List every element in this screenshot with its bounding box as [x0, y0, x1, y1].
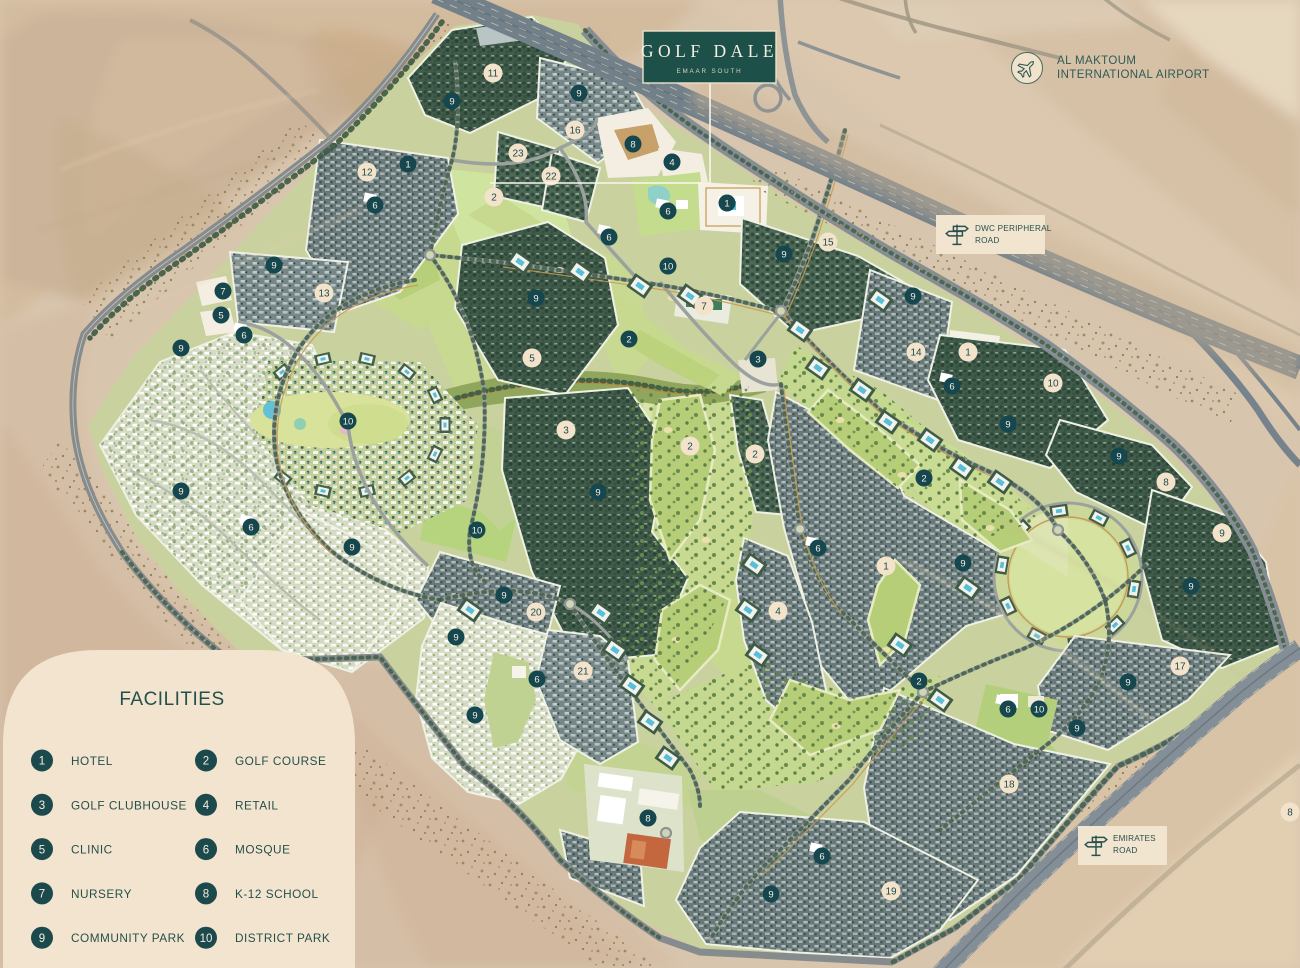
- svg-text:1: 1: [724, 198, 729, 209]
- svg-text:3: 3: [755, 354, 760, 365]
- svg-text:10: 10: [472, 525, 483, 536]
- svg-text:21: 21: [577, 667, 589, 678]
- svg-text:EMIRATES: EMIRATES: [1113, 834, 1156, 843]
- svg-text:16: 16: [569, 126, 581, 137]
- svg-text:9: 9: [533, 293, 538, 304]
- svg-text:9: 9: [39, 933, 45, 945]
- svg-text:1: 1: [39, 756, 45, 768]
- svg-text:3: 3: [563, 426, 569, 437]
- svg-text:20: 20: [530, 608, 542, 619]
- svg-text:COMMUNITY PARK: COMMUNITY PARK: [71, 931, 185, 945]
- svg-text:9: 9: [595, 487, 600, 498]
- svg-text:9: 9: [453, 632, 458, 643]
- svg-text:2: 2: [626, 334, 631, 345]
- svg-text:EMAAR SOUTH: EMAAR SOUTH: [677, 68, 743, 75]
- svg-text:6: 6: [248, 522, 253, 533]
- svg-text:DISTRICT PARK: DISTRICT PARK: [235, 931, 330, 945]
- svg-text:6: 6: [241, 330, 246, 341]
- svg-text:9: 9: [449, 96, 454, 107]
- svg-text:13: 13: [318, 289, 330, 300]
- svg-text:5: 5: [529, 354, 535, 365]
- svg-text:1: 1: [965, 348, 971, 359]
- svg-text:8: 8: [630, 139, 635, 150]
- svg-text:RETAIL: RETAIL: [235, 798, 278, 812]
- svg-text:ROAD: ROAD: [975, 236, 999, 245]
- svg-text:10: 10: [1034, 704, 1045, 715]
- svg-text:19: 19: [885, 887, 897, 898]
- svg-text:10: 10: [343, 416, 354, 427]
- svg-text:1: 1: [405, 159, 410, 170]
- svg-text:7: 7: [220, 286, 225, 297]
- svg-text:ROAD: ROAD: [1113, 846, 1137, 855]
- svg-text:9: 9: [910, 291, 915, 302]
- svg-text:1: 1: [883, 562, 889, 573]
- svg-text:9: 9: [349, 542, 354, 553]
- svg-text:INTERNATIONAL AIRPORT: INTERNATIONAL AIRPORT: [1057, 69, 1210, 81]
- svg-text:9: 9: [472, 710, 477, 721]
- svg-text:6: 6: [372, 200, 377, 211]
- svg-text:6: 6: [1005, 704, 1010, 715]
- svg-text:9: 9: [501, 590, 506, 601]
- svg-text:4: 4: [203, 800, 210, 812]
- svg-text:15: 15: [822, 238, 834, 249]
- svg-text:9: 9: [271, 260, 276, 271]
- svg-text:17: 17: [1174, 662, 1186, 673]
- svg-text:DWC PERIPHERAL: DWC PERIPHERAL: [975, 224, 1052, 233]
- svg-text:18: 18: [1003, 780, 1015, 791]
- svg-text:6: 6: [534, 674, 539, 685]
- svg-text:9: 9: [1005, 419, 1010, 430]
- svg-text:7: 7: [701, 302, 707, 313]
- svg-text:9: 9: [1219, 529, 1225, 540]
- svg-text:2: 2: [491, 193, 497, 204]
- svg-text:9: 9: [1188, 581, 1193, 592]
- svg-text:NURSERY: NURSERY: [71, 887, 132, 901]
- svg-text:4: 4: [669, 157, 674, 168]
- svg-text:2: 2: [752, 450, 758, 461]
- svg-text:3: 3: [39, 800, 45, 812]
- svg-text:9: 9: [781, 249, 786, 260]
- svg-text:14: 14: [910, 348, 922, 359]
- svg-text:8: 8: [203, 889, 209, 901]
- svg-text:6: 6: [665, 206, 670, 217]
- svg-text:GOLF COURSE: GOLF COURSE: [235, 754, 326, 768]
- svg-text:9: 9: [178, 486, 183, 497]
- svg-text:6: 6: [606, 232, 611, 243]
- svg-text:9: 9: [1074, 723, 1079, 734]
- svg-text:GOLF DALE: GOLF DALE: [641, 41, 778, 61]
- svg-text:5: 5: [39, 844, 45, 856]
- svg-text:FACILITIES: FACILITIES: [119, 689, 224, 710]
- svg-text:6: 6: [815, 543, 820, 554]
- svg-text:9: 9: [178, 343, 183, 354]
- svg-text:6: 6: [203, 844, 209, 856]
- svg-text:6: 6: [949, 381, 954, 392]
- svg-text:GOLF CLUBHOUSE: GOLF CLUBHOUSE: [71, 798, 187, 812]
- svg-text:6: 6: [819, 851, 824, 862]
- svg-text:5: 5: [218, 310, 223, 321]
- svg-text:23: 23: [512, 149, 524, 160]
- svg-text:22: 22: [545, 172, 557, 183]
- svg-text:2: 2: [203, 756, 209, 768]
- svg-text:12: 12: [361, 168, 373, 179]
- svg-text:2: 2: [916, 676, 921, 687]
- svg-text:11: 11: [488, 69, 499, 80]
- svg-text:8: 8: [1163, 478, 1169, 489]
- svg-text:7: 7: [39, 889, 45, 901]
- svg-text:HOTEL: HOTEL: [71, 754, 113, 768]
- svg-text:10: 10: [200, 933, 213, 945]
- svg-text:9: 9: [768, 889, 773, 900]
- svg-text:8: 8: [1287, 808, 1293, 819]
- svg-text:9: 9: [1125, 677, 1130, 688]
- svg-text:AL MAKTOUM: AL MAKTOUM: [1057, 55, 1136, 67]
- svg-text:MOSQUE: MOSQUE: [235, 843, 290, 857]
- svg-text:4: 4: [775, 607, 781, 618]
- svg-text:10: 10: [1047, 379, 1059, 390]
- svg-text:K-12 SCHOOL: K-12 SCHOOL: [235, 887, 319, 901]
- svg-text:9: 9: [1116, 451, 1121, 462]
- svg-text:2: 2: [921, 473, 926, 484]
- svg-text:CLINIC: CLINIC: [71, 843, 113, 857]
- svg-text:10: 10: [663, 261, 674, 272]
- svg-text:9: 9: [960, 558, 965, 569]
- svg-text:2: 2: [687, 442, 693, 453]
- svg-text:8: 8: [645, 813, 650, 824]
- svg-text:9: 9: [576, 88, 581, 99]
